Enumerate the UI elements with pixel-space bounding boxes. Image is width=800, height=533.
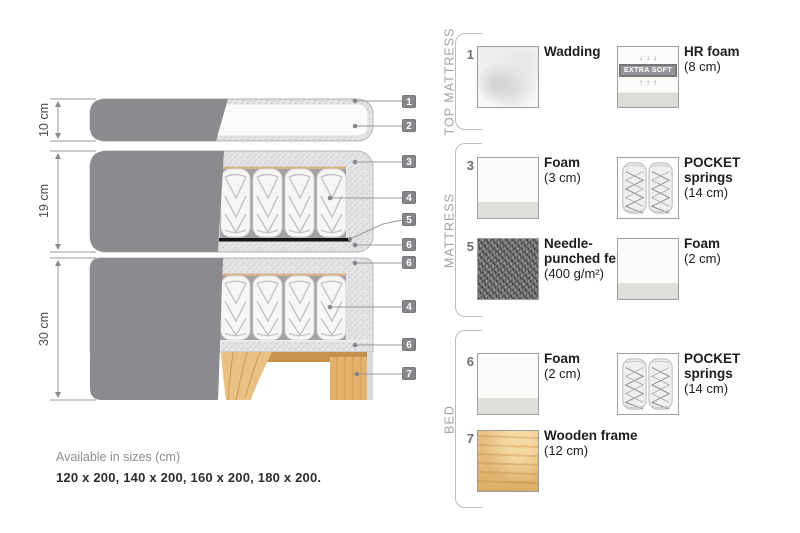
needle-punched-felt-swatch [477, 238, 539, 300]
legend-label-wooden-frame: Wooden frame (12 cm) [544, 428, 640, 459]
callout-tag-2: 2 [402, 119, 416, 132]
cross-section-svg [0, 0, 432, 420]
hr-foam-swatch: ↓↓↓ EXTRA SOFT ↑↑↑ [617, 46, 679, 108]
available-sizes: 120 x 200, 140 x 200, 160 x 200, 180 x 2… [56, 470, 321, 485]
wooden-frame [221, 352, 373, 400]
legend-number-wadding: 1 [457, 47, 474, 62]
extra-soft-arrows-down: ↓↓↓ [636, 54, 660, 62]
wooden-frame-swatch [477, 430, 539, 492]
pocket-springs-swatch [617, 157, 679, 219]
legend-number-felt: 5 [457, 239, 474, 254]
extra-soft-badge: EXTRA SOFT [619, 64, 677, 77]
legend-label-hr-foam: HR foam (8 cm) [684, 44, 780, 75]
top-mattress-cross-section [90, 99, 373, 141]
mattress-cross-section [90, 151, 373, 252]
legend-number-bed-foam: 6 [457, 354, 474, 369]
cross-section-diagram: 10 cm 19 cm 30 cm 1 2 3 4 5 6 6 4 6 7 Av… [0, 0, 432, 533]
materials-legend: TOP MATTRESS MATTRESS BED 1 Wadding 2 ↓↓… [432, 0, 800, 533]
bed-foam-swatch [477, 353, 539, 415]
legend-number-foam-3cm: 3 [457, 158, 474, 173]
legend-number-wooden-frame: 7 [457, 431, 474, 446]
callout-tag-4b: 4 [402, 300, 416, 313]
callout-tag-6: 6 [402, 238, 416, 251]
legend-label-pocket-springs: POCKET springs (14 cm) [684, 155, 780, 201]
pocket-springs-illustration [618, 354, 678, 414]
wadding-swatch [477, 46, 539, 108]
bed-pocket-springs-swatch [617, 353, 679, 415]
callout-tag-4: 4 [402, 191, 416, 204]
infographic-canvas: 10 cm 19 cm 30 cm 1 2 3 4 5 6 6 4 6 7 Av… [0, 0, 800, 533]
foam-2cm-swatch [617, 238, 679, 300]
callout-tag-5: 5 [402, 213, 416, 226]
pocket-springs-illustration [618, 158, 678, 218]
callout-tag-6c: 6 [402, 338, 416, 351]
bed-cross-section [90, 258, 373, 400]
dimension-label-mattress: 19 cm [37, 171, 51, 231]
section-title-top-mattress: TOP MATTRESS [443, 0, 458, 167]
callout-tag-6b: 6 [402, 256, 416, 269]
extra-soft-arrows-up: ↑↑↑ [636, 79, 660, 87]
availability-label: Available in sizes (cm) [56, 450, 321, 464]
legend-label-bed-pocket-springs: POCKET springs (14 cm) [684, 351, 780, 397]
availability-note: Available in sizes (cm) 120 x 200, 140 x… [56, 450, 321, 485]
foam-3cm-swatch [477, 157, 539, 219]
dimension-arrows [50, 99, 96, 400]
dimension-label-bed: 30 cm [37, 299, 51, 359]
legend-label-foam-2cm: Foam (2 cm) [684, 236, 780, 267]
callout-tag-3: 3 [402, 155, 416, 168]
section-title-bed: BED [443, 335, 458, 505]
section-title-mattress: MATTRESS [443, 146, 458, 316]
callout-tag-1: 1 [402, 95, 416, 108]
callout-tag-7: 7 [402, 367, 416, 380]
dimension-label-top-mattress: 10 cm [37, 90, 51, 150]
